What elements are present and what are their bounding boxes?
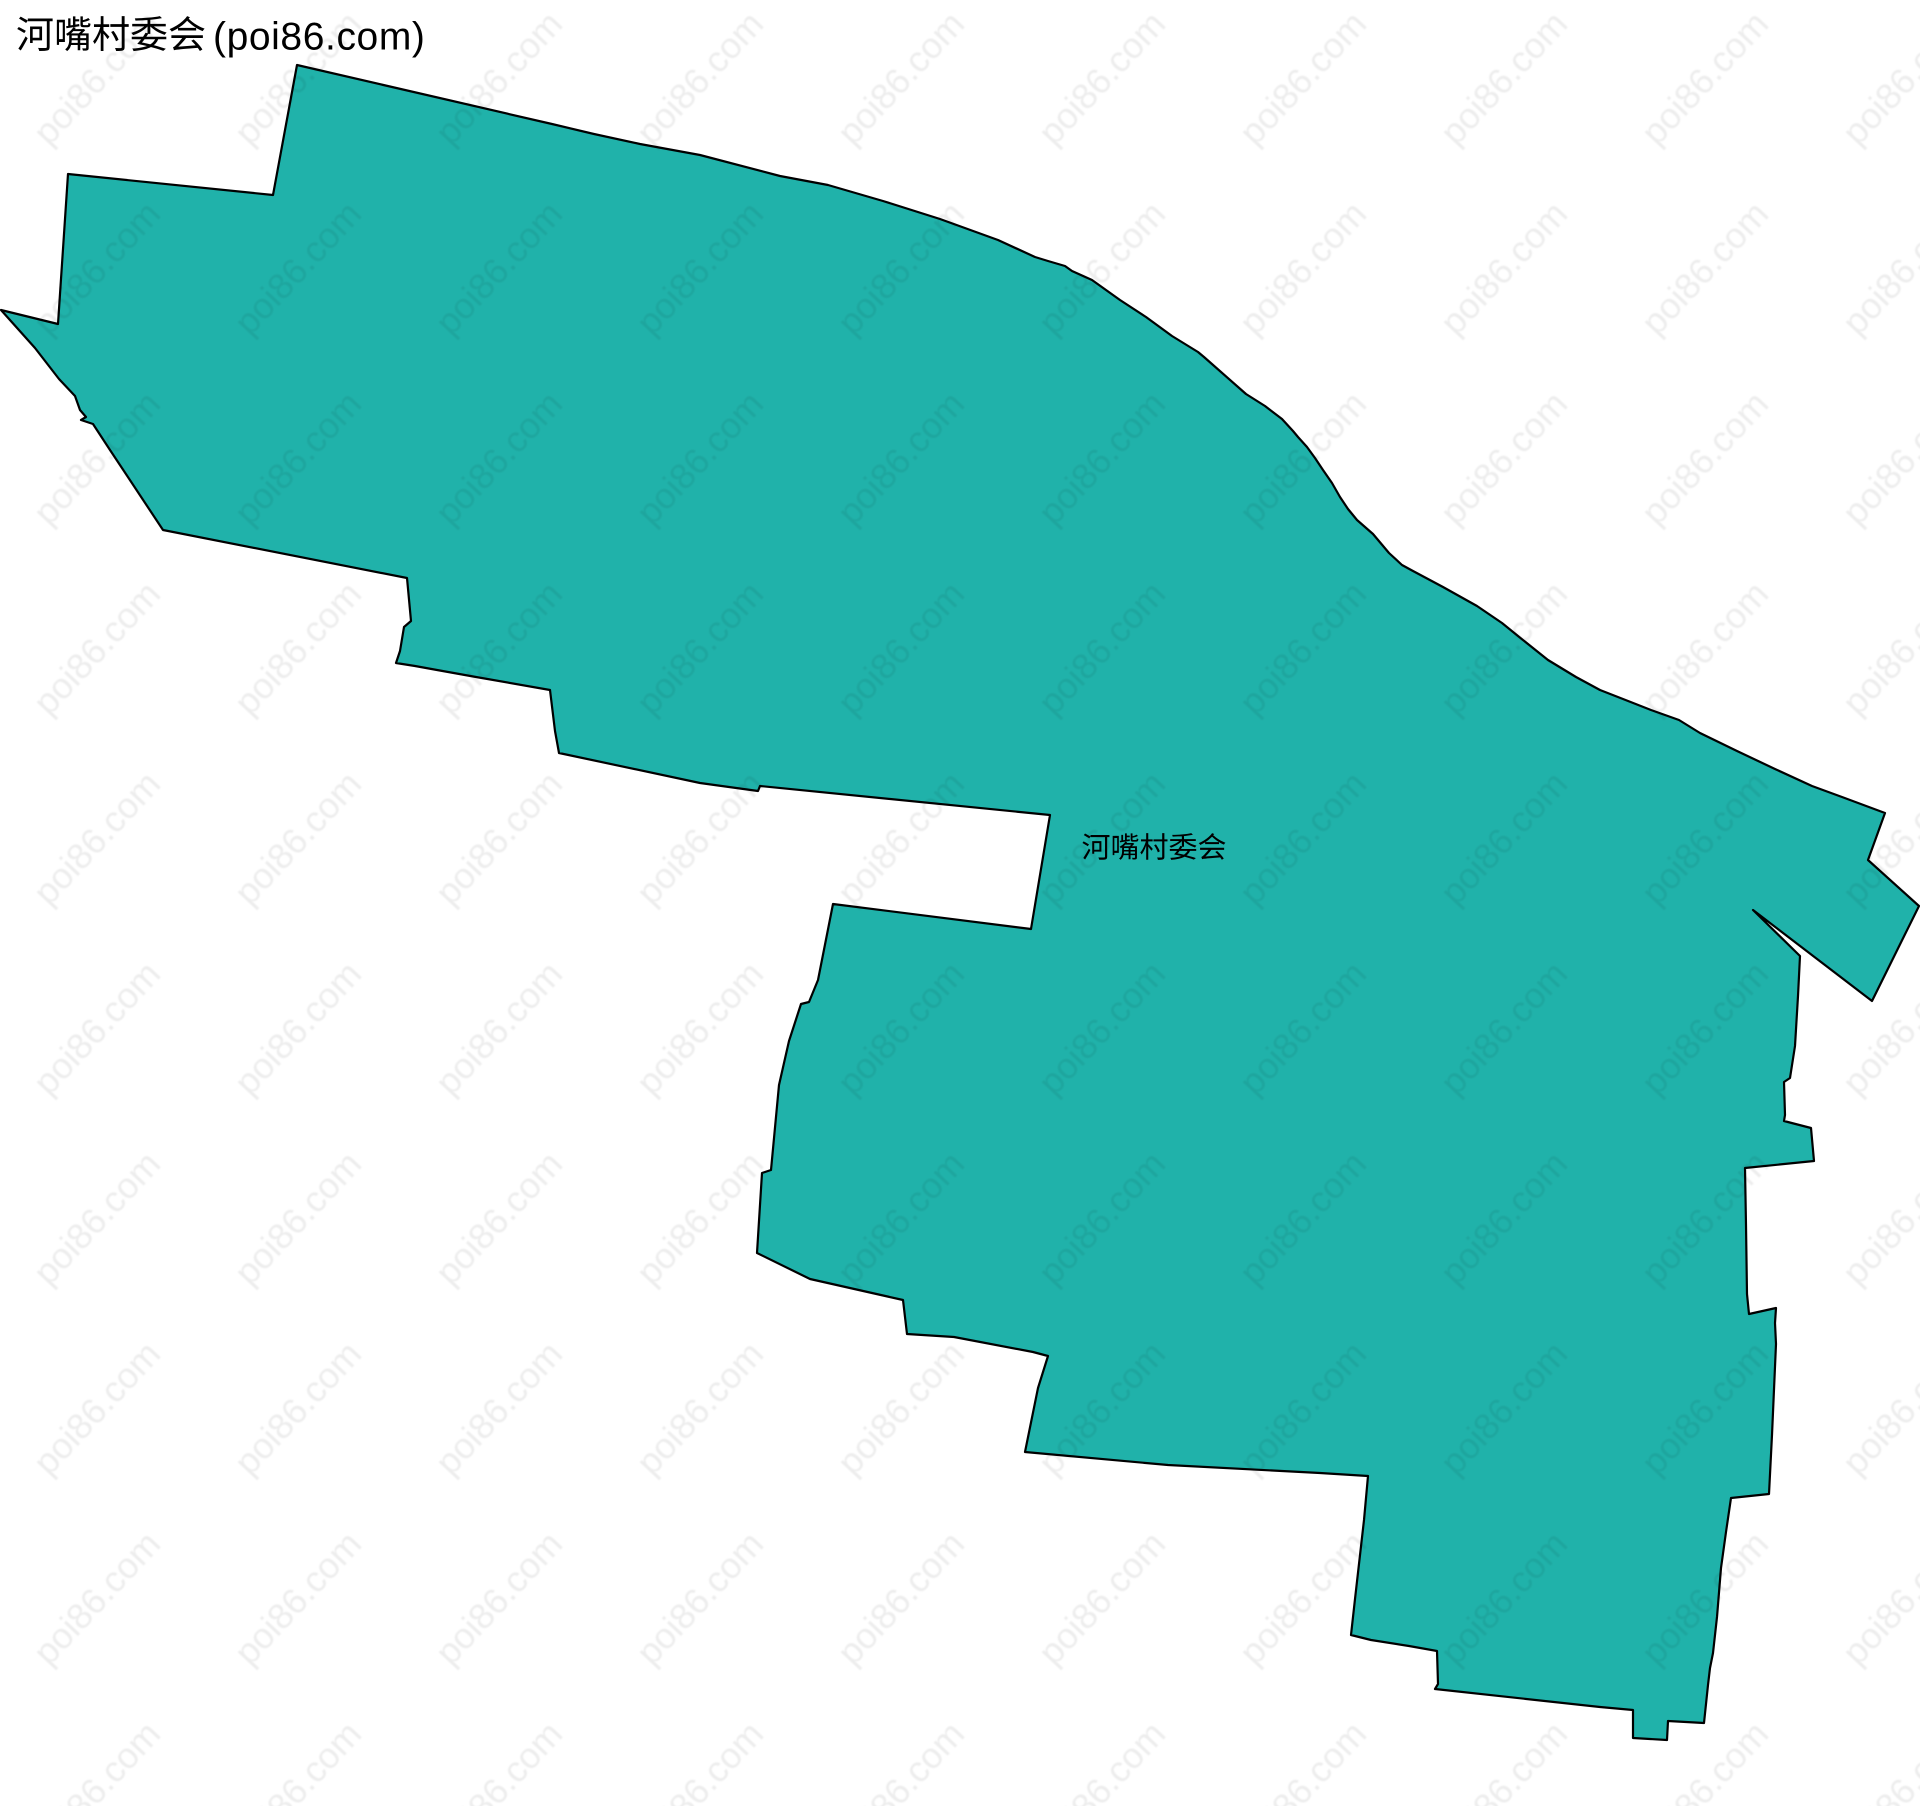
svg-text:(poi86.com): (poi86.com) <box>213 16 426 59</box>
